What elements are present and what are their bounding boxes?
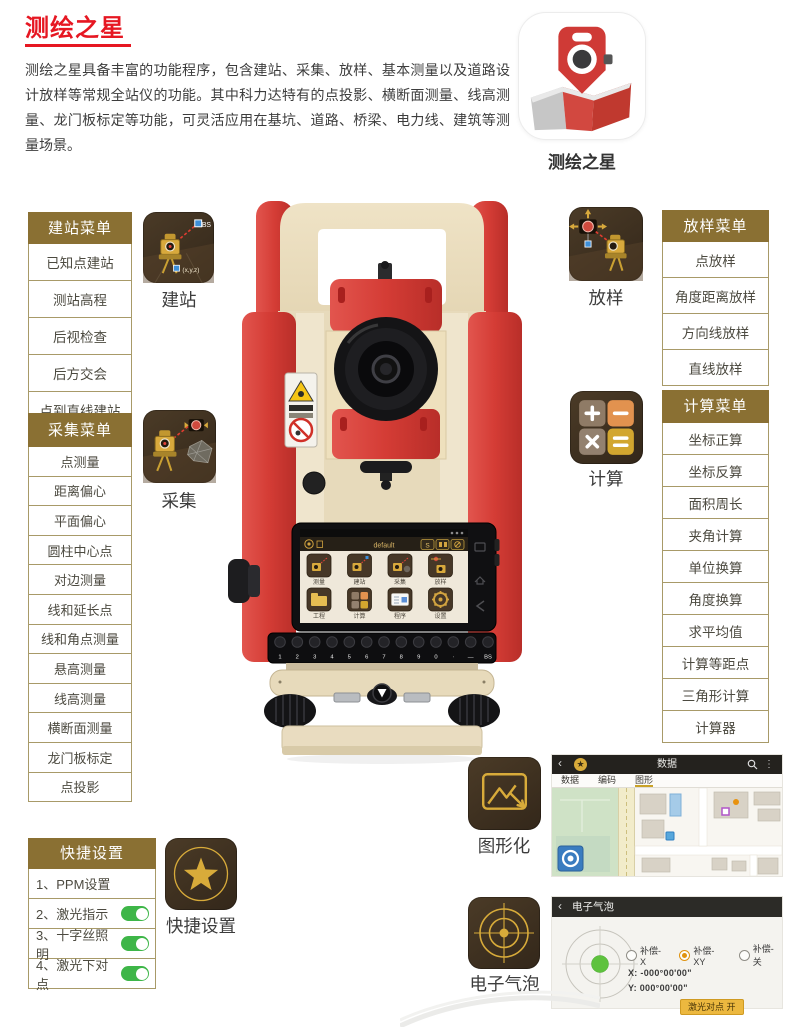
menu-item: 线高测量 [28, 684, 132, 714]
quick-item-label: 1、PPM设置 [36, 874, 110, 893]
app-icon [518, 12, 646, 140]
calc-menu: 计算菜单 坐标正算 坐标反算 面积周长 夹角计算 单位换算 角度换算 求平均值 … [662, 390, 769, 743]
menu-item: 单位换算 [662, 551, 769, 583]
screen-display-mode-button[interactable] [436, 540, 449, 550]
page: 测绘之星 测绘之星具备丰富的功能程序，包含建站、采集、放样、基本测量以及道路设计… [0, 0, 787, 1027]
screen-app-label: 计算 [353, 612, 365, 620]
menu-item: 横断面测量 [28, 713, 132, 743]
menu-item: 线和延长点 [28, 595, 132, 625]
station-menu-title: 建站菜单 [28, 212, 132, 244]
map-canvas[interactable] [552, 788, 782, 876]
device-keyboard: 1234567890·—BS [268, 633, 496, 663]
menu-item: 点放样 [662, 242, 769, 278]
title-underline [25, 44, 131, 47]
map-tabs: 数据 编码 图形 [552, 774, 782, 788]
stakeout-feature-icon [569, 207, 643, 281]
toggle-knob [136, 968, 148, 980]
svg-text:·: · [452, 655, 454, 661]
menu-item: 圆柱中心点 [28, 536, 132, 566]
app-icon-label: 测绘之星 [518, 148, 646, 173]
station-feature-label: 建站 [129, 287, 229, 312]
bubble-panel-title: 电子气泡 [572, 897, 614, 917]
station-menu: 建站菜单 已知点建站 测站高程 后视检查 后方交会 点到直线建站 [28, 212, 132, 429]
swoosh-decoration [400, 980, 600, 1027]
menu-item: 三角形计算 [662, 679, 769, 711]
map-point-marker [733, 799, 739, 805]
menu-item: 悬高测量 [28, 654, 132, 684]
collect-menu: 采集菜单 点测量 距离偏心 平面偏心 圆柱中心点 对边测量 线和延长点 线和角点… [28, 413, 132, 802]
laser-warning-sticker [285, 373, 317, 447]
station-feature-icon: BS (x,y,z) [143, 212, 214, 283]
graphic-feature-label: 图形化 [454, 833, 554, 858]
toggle-knob [136, 938, 148, 950]
tab-data[interactable]: 数据 [561, 774, 579, 787]
map-panel-header: ‹ ★ 数据 ⋮ [552, 755, 782, 774]
xyz-label: (x,y,z) [182, 267, 199, 274]
menu-item: 后方交会 [28, 355, 132, 392]
menu-item: 坐标反算 [662, 455, 769, 487]
menu-item: 4、激光下对点 [28, 959, 156, 989]
menu-item: 求平均值 [662, 615, 769, 647]
radio-circle-checked [679, 950, 690, 961]
menu-item: 计算等距点 [662, 647, 769, 679]
svg-text:9: 9 [417, 655, 420, 661]
laser-plummet-toggle-on[interactable] [121, 966, 149, 981]
menu-item: 夹角计算 [662, 519, 769, 551]
radio-label: 补偿-X [640, 944, 666, 967]
screen-s-button-label: S [425, 543, 430, 550]
radio-circle [739, 950, 750, 961]
screen-app-label: 放样 [434, 578, 446, 586]
svg-text:6: 6 [365, 655, 368, 661]
quick-item-label: 4、激光下对点 [36, 955, 121, 993]
crosshair-light-toggle-on[interactable] [121, 936, 149, 951]
bubble-panel-header: ‹ 电子气泡 [552, 897, 782, 917]
bs-label: BS [202, 222, 212, 229]
screen-app-label: 设置 [434, 612, 446, 620]
radio-compensate-xy[interactable]: 补偿-XY [679, 942, 725, 968]
product-photo: default S 测量 建 [228, 193, 536, 768]
tilt-y-value: 000°00'00" [640, 983, 688, 993]
quick-settings-feature-icon [165, 838, 237, 910]
collect-menu-title: 采集菜单 [28, 413, 132, 447]
screen-app-label: 采集 [394, 578, 406, 586]
stakeout-menu: 放样菜单 点放样 角度距离放样 方向线放样 直线放样 [662, 210, 769, 386]
screen-project-title: default [373, 543, 394, 550]
calc-feature-icon [570, 391, 643, 464]
menu-item: 坐标正算 [662, 423, 769, 455]
tilt-y-readout: Y: 000°00'00" [628, 983, 688, 993]
device-screen: default S 测量 建 [292, 523, 500, 631]
menu-item: 角度换算 [662, 583, 769, 615]
svg-text:—: — [468, 655, 474, 661]
menu-item: 测站高程 [28, 281, 132, 318]
quick-settings-title: 快捷设置 [28, 838, 156, 869]
menu-item: 线和角点测量 [28, 625, 132, 655]
quick-item-label: 2、激光指示 [36, 904, 108, 923]
menu-item: 方向线放样 [662, 314, 769, 350]
overflow-menu-icon[interactable]: ⋮ [764, 756, 774, 773]
menu-item: 距离偏心 [28, 477, 132, 507]
quick-settings-menu: 快捷设置 1、PPM设置 2、激光指示 3、十字丝照明 4、激光下对点 [28, 838, 156, 989]
collect-feature-label: 采集 [129, 488, 229, 513]
quick-settings-feature-label: 快捷设置 [151, 913, 251, 938]
menu-item: 平面偏心 [28, 506, 132, 536]
stakeout-feature-label: 放样 [556, 285, 656, 310]
bubble-dot [592, 956, 609, 973]
menu-item: 已知点建站 [28, 244, 132, 281]
app-icon-art [519, 13, 645, 139]
menu-item: 角度距离放样 [662, 278, 769, 314]
radio-circle [626, 950, 637, 961]
screen-app-label: 程序 [394, 612, 406, 620]
radio-compensate-off[interactable]: 补偿-关 [739, 942, 782, 968]
menu-item: 点测量 [28, 447, 132, 477]
svg-text:0: 0 [434, 655, 437, 661]
map-panel: ‹ ★ 数据 ⋮ 数据 编码 图形 [552, 755, 782, 876]
screen-app-label: 建站 [353, 578, 365, 586]
tilt-x-readout: X: -000°00'00" [628, 968, 692, 978]
page-description: 测绘之星具备丰富的功能程序，包含建站、采集、放样、基本测量以及道路设计放样等常规… [25, 58, 510, 158]
toggle-knob [136, 908, 148, 920]
menu-item: 对边测量 [28, 565, 132, 595]
radio-label: 补偿-XY [693, 944, 725, 967]
svg-text:1: 1 [278, 655, 281, 661]
laser-pointer-toggle-on[interactable] [121, 906, 149, 921]
page-title: 测绘之星 [25, 8, 125, 43]
stakeout-menu-title: 放样菜单 [662, 210, 769, 242]
bubble-feature-icon [468, 897, 540, 969]
radio-label: 补偿-关 [753, 942, 782, 968]
calc-menu-title: 计算菜单 [662, 390, 769, 423]
tribrach-base [264, 663, 500, 755]
tab-code[interactable]: 编码 [598, 774, 616, 787]
compensation-radios: 补偿-X 补偿-XY 补偿-关 [626, 942, 782, 968]
back-icon[interactable]: ‹ [558, 899, 562, 913]
graphic-feature-icon [468, 757, 541, 830]
menu-item: 龙门板标定 [28, 743, 132, 773]
svg-text:5: 5 [348, 655, 351, 661]
map-selected-point [722, 808, 729, 815]
svg-text:3: 3 [313, 655, 316, 661]
menu-item: 后视检查 [28, 318, 132, 355]
menu-item: 面积周长 [662, 487, 769, 519]
menu-item: 直线放样 [662, 350, 769, 386]
svg-text:7: 7 [382, 655, 385, 661]
collect-feature-icon [143, 410, 216, 483]
radio-compensate-x[interactable]: 补偿-X [626, 942, 666, 968]
svg-text:BS: BS [484, 655, 492, 661]
svg-text:2: 2 [296, 655, 299, 661]
location-button[interactable] [558, 846, 583, 871]
laser-plummet-button[interactable]: 激光对点 开 [680, 999, 744, 1015]
tab-graphic[interactable]: 图形 [635, 774, 653, 787]
screen-app-label: 工程 [313, 612, 325, 620]
menu-item: 1、PPM设置 [28, 869, 156, 899]
search-icon[interactable] [747, 759, 758, 770]
calc-feature-label: 计算 [556, 466, 656, 491]
tilt-x-value: -000°00'00" [640, 968, 691, 978]
screen-app-label: 测量 [313, 578, 325, 586]
menu-item: 计算器 [662, 711, 769, 743]
svg-text:8: 8 [400, 655, 403, 661]
menu-item: 点投影 [28, 773, 132, 803]
